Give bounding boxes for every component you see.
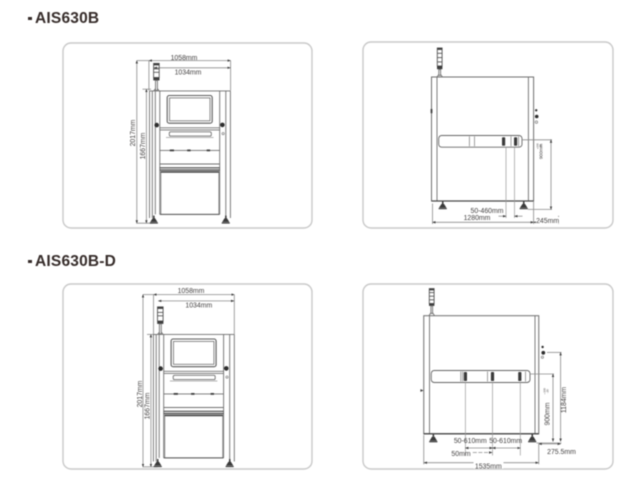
- svg-text:50-460mm: 50-460mm: [471, 208, 504, 215]
- svg-text:1184mm: 1184mm: [561, 387, 568, 414]
- svg-text:245mm: 245mm: [536, 218, 559, 225]
- svg-text:1034mm: 1034mm: [185, 302, 212, 309]
- svg-text:50mm: 50mm: [451, 451, 470, 458]
- svg-text:1058mm: 1058mm: [171, 55, 198, 62]
- svg-text:1280mm: 1280mm: [464, 215, 491, 222]
- svg-text:275.5mm: 275.5mm: [547, 449, 576, 456]
- svg-text:1058mm: 1058mm: [178, 288, 205, 295]
- svg-text:2017mm: 2017mm: [137, 380, 144, 407]
- svg-text:50-610mm: 50-610mm: [489, 438, 522, 445]
- svg-text:1667mm: 1667mm: [140, 132, 147, 159]
- svg-text:50-610mm: 50-610mm: [454, 438, 487, 445]
- svg-text:1667mm: 1667mm: [145, 392, 152, 419]
- svg-text:-20: -20: [546, 389, 550, 393]
- svg-text:1034mm: 1034mm: [175, 69, 202, 76]
- svg-text:2017mm: 2017mm: [130, 119, 137, 146]
- svg-text:1535mm: 1535mm: [475, 463, 502, 470]
- svg-text:900mm: 900mm: [544, 402, 551, 425]
- svg-text:-20: -20: [538, 144, 542, 148]
